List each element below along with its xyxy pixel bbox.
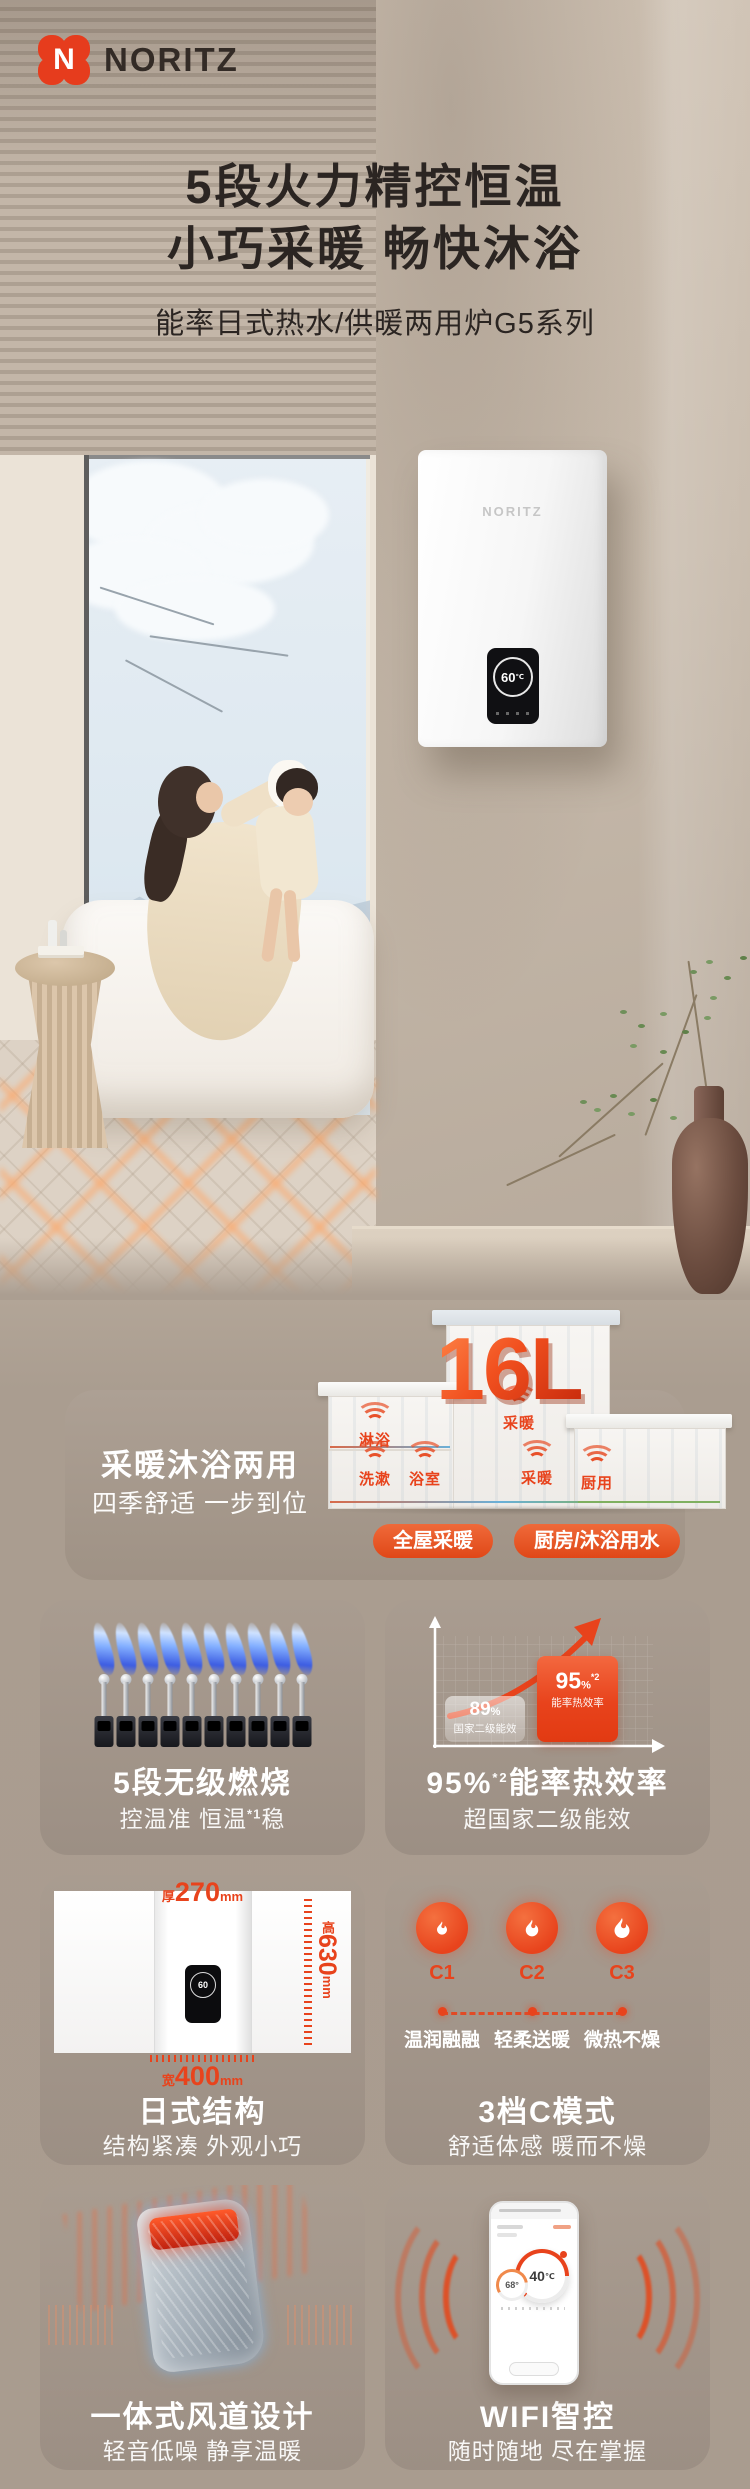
room-label-bathroom: 浴室 <box>408 1448 442 1489</box>
leaf-cluster <box>580 1100 587 1104</box>
mode-c1: C1 <box>397 1902 487 1985</box>
dial-pin <box>560 2251 567 2258</box>
flame-icon <box>416 1902 468 1954</box>
heat-wave-icon <box>520 1447 554 1467</box>
promo-page: NORITZ 60℃ N NORITZ <box>0 0 750 2489</box>
hero-section: NORITZ 60℃ N NORITZ <box>0 0 750 1300</box>
headline-line1: 5段火力精控恒温 <box>0 148 750 217</box>
card-wifi-control: 40℃ 68° WIFI智控 随时随地 尽在掌握 <box>385 2185 710 2470</box>
height-dimension: 高630mm <box>312 1921 341 1999</box>
heat-wave-icon <box>358 1409 392 1429</box>
capacity-16l: 16L <box>436 1318 582 1420</box>
card-5-stage-burning: 5段无级燃烧 控温准 恒温*1稳 <box>40 1600 365 1855</box>
twig <box>644 994 697 1136</box>
air-duct-image <box>135 2197 266 2374</box>
mode-label: 轻柔送暖 <box>484 2025 580 2052</box>
brand-name: NORITZ <box>104 41 239 79</box>
dual-use-heading: 采暖沐浴两用 <box>75 1440 325 1485</box>
card-air-duct: 一体式风道设计 轻音低噪 静享温暖 <box>40 2185 365 2470</box>
heater-front-view: 60 <box>154 1891 252 2053</box>
child-figure <box>254 804 320 903</box>
mother-face <box>196 782 223 813</box>
headline-line2: 小巧采暖 畅快沐浴 <box>0 210 750 279</box>
card-thermal-efficiency: 89% 国家二级能效 95%*2 能率热效率 95%*2能率热效率 超国家二级能… <box>385 1600 710 1855</box>
card-subtitle: 结构紧凑 外观小巧 <box>40 2127 365 2161</box>
flame-icon <box>596 1902 648 1954</box>
room-label-kitchen: 厨用 <box>580 1452 614 1493</box>
heat-wave-arc <box>584 2205 700 2391</box>
child-face <box>283 788 313 816</box>
features-section: 16L 采暖沐浴两用 四季舒适 一步到位 全屋采暖 厨房/沐浴用水 淋浴 采暖 <box>0 1300 750 2489</box>
card-subtitle: 轻音低噪 静享温暖 <box>40 2432 365 2466</box>
heat-wave-icon <box>580 1452 614 1472</box>
secondary-dial: 68° <box>496 2269 528 2301</box>
mini-display-temp: 60 <box>190 1972 216 1998</box>
twig <box>506 1134 616 1187</box>
sound-wave-bars <box>48 2305 118 2345</box>
sound-wave-bars <box>287 2305 357 2345</box>
heater-brand-label: NORITZ <box>418 504 607 519</box>
heater-temp-unit: ℃ <box>515 673 523 681</box>
pill-whole-house-heating: 全屋采暖 <box>373 1524 493 1558</box>
burner-flames-image <box>94 1622 311 1747</box>
smartphone-app-mockup: 40℃ 68° <box>489 2201 579 2385</box>
heat-wave-icon <box>408 1448 442 1468</box>
mode-c2: C2 <box>487 1902 577 1985</box>
glowing-vent <box>148 2208 239 2250</box>
water-pipe <box>578 1501 720 1503</box>
vertical-ruler <box>304 1899 312 2045</box>
product-size-image: 60 高630mm <box>54 1891 351 2053</box>
card-title: WIFI智控 <box>385 2392 710 2436</box>
card-title: 95%*2能率热效率 <box>385 1758 710 1802</box>
bar-noritz-efficiency: 95%*2 能率热效率 <box>537 1656 618 1742</box>
app-text-bar <box>553 2225 571 2229</box>
dial-ticks <box>501 2307 565 2310</box>
snow-tree-blob <box>199 479 329 551</box>
room-label-heating-bottom: 采暖 <box>520 1447 554 1488</box>
water-pipe <box>330 1501 614 1503</box>
bar-national-level2: 89% 国家二级能效 <box>445 1696 525 1742</box>
app-text-bar <box>497 2225 523 2229</box>
card-title: 3档C模式 <box>385 2087 710 2131</box>
house-shadow <box>322 1505 728 1515</box>
mode-dot <box>438 2007 447 2016</box>
card-title: 日式结构 <box>40 2087 365 2131</box>
noritz-logo-icon: N <box>38 35 90 85</box>
heater-mini-display: 60 <box>185 1965 221 2023</box>
card-subtitle: 随时随地 尽在掌握 <box>385 2432 710 2466</box>
card-subtitle: 超国家二级能效 <box>385 1800 710 1834</box>
card-c-mode: C1 C2 C3 温润融融 轻柔送暖 微热不燥 3档C模式 舒适体 <box>385 1875 710 2165</box>
leaf-cluster <box>620 1010 627 1014</box>
twig <box>558 1062 663 1157</box>
mode-label: 微热不燥 <box>574 2025 670 2052</box>
card-subtitle: 舒适体感 暖而不燥 <box>385 2127 710 2161</box>
mode-c3: C3 <box>577 1902 667 1985</box>
mode-dot <box>618 2007 627 2016</box>
app-header <box>491 2203 577 2219</box>
flame-icon <box>506 1902 558 1954</box>
house-roof <box>566 1414 732 1428</box>
heater-temp-value: 60 <box>501 670 515 685</box>
logo-letter: N <box>38 35 90 85</box>
depth-dimension: 厚270mm <box>40 1877 365 1908</box>
dual-use-subheading: 四季舒适 一步到位 <box>55 1484 345 1520</box>
stool-top <box>15 950 115 986</box>
heater-control-panel: 60℃ <box>487 648 539 724</box>
mode-label: 温润融融 <box>394 2025 490 2052</box>
headline-subtitle: 能率日式热水/供暖两用炉G5系列 <box>0 300 750 342</box>
book <box>38 946 84 955</box>
app-text-bar <box>497 2233 517 2237</box>
card-title: 5段无级燃烧 <box>40 1758 365 1802</box>
heater-display: 60℃ <box>493 657 533 697</box>
room-label-washing: 洗漱 <box>358 1448 392 1489</box>
mode-dot <box>528 2007 537 2016</box>
tree-branch <box>125 659 223 712</box>
heater-buttons <box>496 712 530 715</box>
leaf-cluster <box>690 970 697 974</box>
card-japanese-structure: 厚270mm 60 高630mm 宽400mm 日式结构 结构紧凑 外观小巧 <box>40 1875 365 2165</box>
section-fade <box>0 1238 750 1300</box>
wall-water-heater: NORITZ 60℃ <box>418 450 607 747</box>
brown-vase <box>672 1118 748 1294</box>
brand-logo: N NORITZ <box>38 34 239 86</box>
app-button <box>509 2362 559 2376</box>
heat-wave-icon <box>358 1448 392 1468</box>
pill-kitchen-bath-water: 厨房/沐浴用水 <box>514 1524 680 1558</box>
card-title: 一体式风道设计 <box>40 2392 365 2436</box>
card-subtitle: 控温准 恒温*1稳 <box>40 1800 365 1834</box>
snow-tree-blob <box>115 577 275 641</box>
